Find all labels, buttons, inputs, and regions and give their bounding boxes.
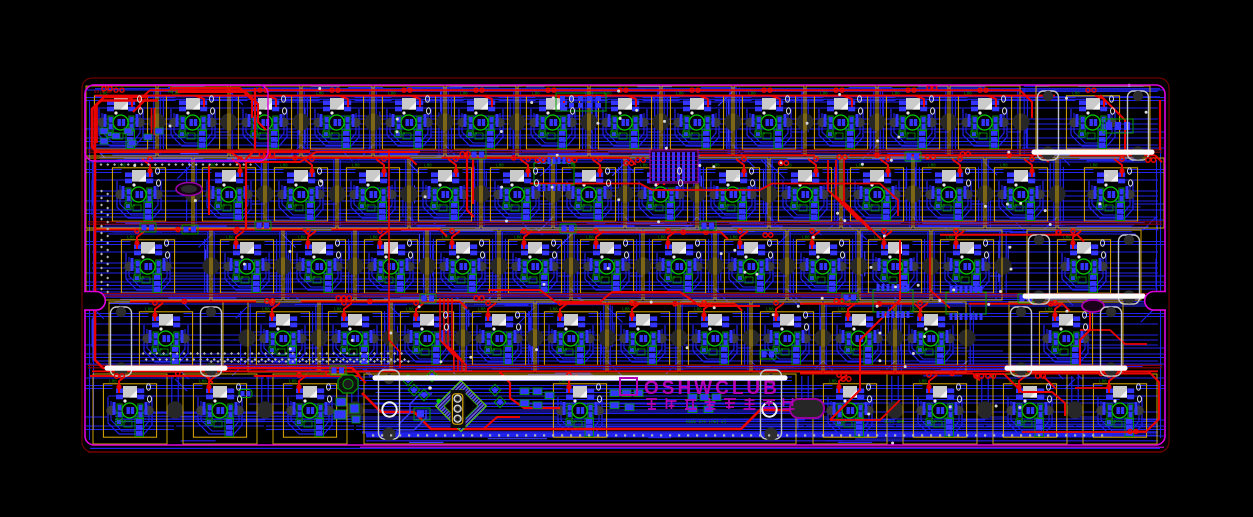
svg-text:IL13 0RU: IL13 0RU xyxy=(884,421,905,425)
svg-text:93-6 08: 93-6 08 xyxy=(94,91,112,95)
svg-text:OSHWCLUB: OSHWCLUB xyxy=(644,378,780,399)
svg-text:H1U5 1TV (A5) 2): H1U5 1TV (A5) 2) xyxy=(686,420,726,425)
svg-text:A0 8: A0 8 xyxy=(168,91,179,95)
